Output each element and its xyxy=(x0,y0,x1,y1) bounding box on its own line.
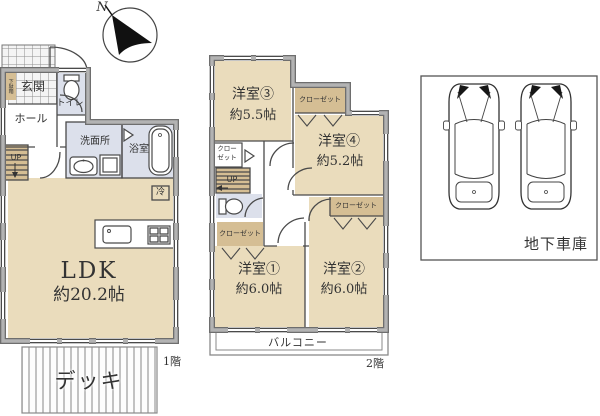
deck-area xyxy=(22,347,157,413)
closet-room3 xyxy=(214,143,242,167)
closet-room2 xyxy=(330,197,383,216)
washing-machine-icon xyxy=(100,155,120,175)
ldk-room xyxy=(8,178,176,339)
balcony xyxy=(210,331,388,355)
floorplan-canvas: N 玄関 下駄箱 トイレ ホール 洗面所 浴室 UP 冷 LDK 約20.2帖 … xyxy=(0,0,600,416)
garage-plan xyxy=(421,76,597,260)
car-icon xyxy=(444,84,505,209)
kitchen-sink-icon xyxy=(103,226,131,243)
floorplan-linework xyxy=(0,0,600,416)
room4 xyxy=(295,115,384,195)
washbasin-icon xyxy=(70,157,97,175)
room1-door-arc xyxy=(278,218,304,243)
floor2-plan xyxy=(209,55,388,355)
room2 xyxy=(309,197,384,330)
room3-door-arc xyxy=(270,143,294,166)
toilet-icon-f2 xyxy=(219,199,243,214)
stove-icon xyxy=(148,226,170,244)
room3 xyxy=(214,60,291,141)
floor1-plan xyxy=(0,45,178,413)
closet-room1 xyxy=(217,222,263,246)
bathtub-icon xyxy=(149,126,172,175)
closet-door-icon xyxy=(245,150,254,162)
room1 xyxy=(214,246,305,330)
compass-icon xyxy=(103,5,157,62)
car-icon xyxy=(516,84,577,209)
kitchen-counter xyxy=(95,220,176,248)
closet-room4 xyxy=(295,87,345,113)
hall-ldk-door-arc xyxy=(40,152,60,178)
